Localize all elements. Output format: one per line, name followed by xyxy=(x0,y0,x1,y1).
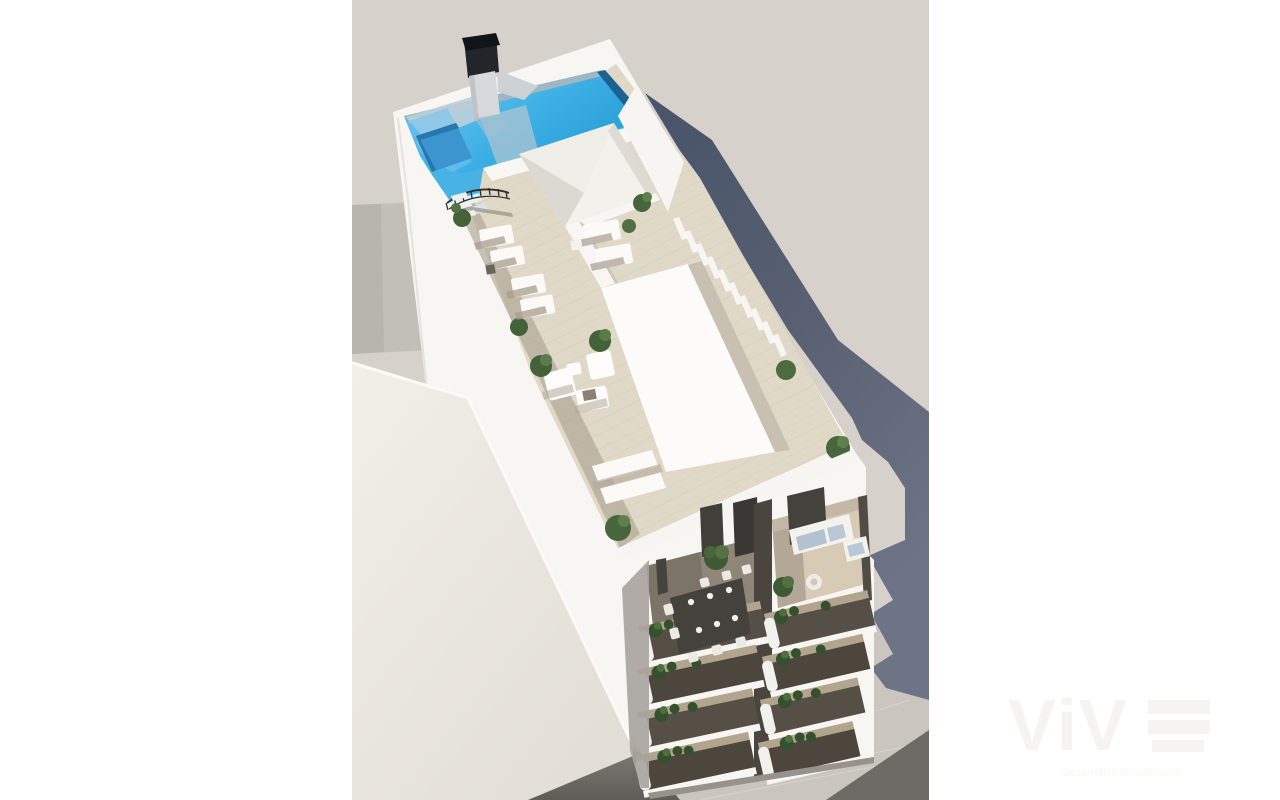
svg-text:desarrollos inmobiliarios: desarrollos inmobiliarios xyxy=(1063,767,1181,779)
svg-text:ViV: ViV xyxy=(1008,686,1129,766)
